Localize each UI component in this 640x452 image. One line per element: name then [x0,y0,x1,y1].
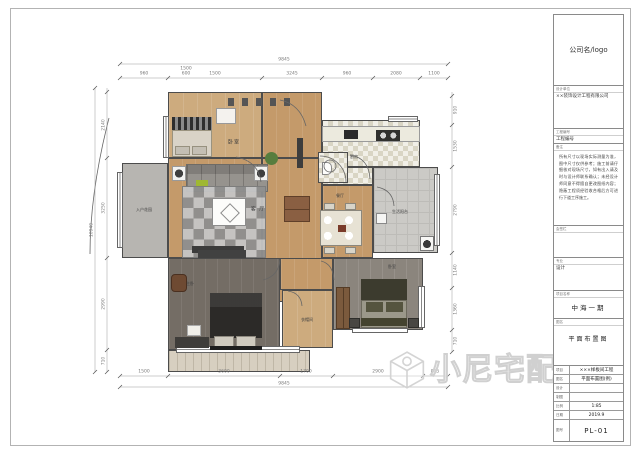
company-logo-text: 公司名/logo [569,45,607,55]
tb-design-unit-value: ××装饰设计工程有限公司 [554,93,623,101]
label-entry: 入户花园 [136,207,152,213]
tb-project-name-value: 中海一期 [554,298,623,312]
tb-drawing-name: 图名 平面布置图 [554,319,623,366]
dim-bottom-overall: 9845 [278,382,289,387]
tb-design-unit: 设计单位 ××装饰设计工程有限公司 [554,86,623,129]
tb-row-scale: 比例 1:85 [554,402,623,411]
tb-row-date: 日期 2019.9 [554,411,623,420]
dim-bottom-seg: 3600 [218,370,229,375]
dim-left-seg: 2990 [102,298,107,309]
tb-notes-text: 所有尺寸以现场实际测量为准，图中尺寸仅供参考；施工前请仔细核对现场尺寸，如有出入… [554,151,623,205]
dim-left-overall: 10940 [90,223,95,237]
dim-bottom-seg: 1700 [300,370,311,375]
title-block: 公司名/logo 设计单位 ××装饰设计工程有限公司 工程编号 工程编号 备注 … [553,14,624,442]
label-dining: 餐厅 [336,193,344,199]
tb-drawing-name-value: 平面布置图 [554,326,623,343]
tb-notes: 备注 所有尺寸以现场实际测量为准，图中尺寸仅供参考；施工前请仔细核对现场尺寸，如… [554,144,623,226]
tb-design-unit-label: 设计单位 [554,86,623,93]
dim-left-seg: 710 [102,357,107,366]
label-living: 客 厅 [251,206,266,213]
dim-top-seg: 960 [343,72,352,77]
label-master: 主卧 [186,281,194,287]
dim-top-seg: 1500 [209,72,220,77]
dim-top-overall: 9845 [278,58,289,63]
dim-bottom-seg: 1500 [138,370,149,375]
tb-project-name-label: 项目名称 [554,291,623,298]
dim-right-seg: 1140 [454,264,459,275]
tb-notes-label: 备注 [554,144,623,151]
label-kitchen: 厨房 [350,154,358,160]
tb-sheet-number: PL-01 [570,420,623,441]
tb-row-label: 日期 [554,411,570,419]
tb-row-label: 图号 [554,420,570,441]
watermark-cube-icon [384,346,430,394]
tb-row-value [570,393,623,401]
tb-discipline-value: 设计 [554,265,623,273]
dim-right-seg: 1360 [454,303,459,314]
tb-logo-box: 公司名/logo [554,15,623,86]
tb-row-designer: 设计 [554,384,623,393]
tb-row-drafter: 制图 [554,393,623,402]
tb-row-label: 比例 [554,402,570,410]
tb-project-no-value: 工程编号 [554,136,623,144]
tb-discipline: 专业 设计 [554,258,623,291]
watermark: 小尼宅配 [384,346,558,394]
tb-project-name: 项目名称 中海一期 [554,291,623,319]
label-laundry: 生活阳台 [392,209,408,215]
dim-bottom-seg: 2900 [372,370,383,375]
tb-project-no: 工程编号 工程编号 [554,129,623,144]
tb-row-label: 设计 [554,384,570,392]
dim-right-seg: 1530 [454,140,459,151]
dim-right-seg: 910 [454,106,459,115]
dim-left-seg: 3250 [102,202,107,213]
dim-top-seg: 1100 [428,72,439,77]
tb-row-label: 图名 [554,375,570,383]
tb-sign-label: 会签栏 [554,226,623,233]
drawing-sheet: 卧室 客 厅 入户花园 厨房 生活阳台 餐厅 主卧 衣帽间 卧室 9845 96… [0,0,640,452]
tb-row-value: ×××样板间工程 [570,366,623,374]
dim-top-seg: 960 [140,72,149,77]
dim-left-seg: 2140 [102,119,107,130]
tb-discipline-label: 专业 [554,258,623,265]
tb-row-label: 项目 [554,366,570,374]
tb-table: 项目 ×××样板间工程 图名 平面布置图(例) 设计 制图 比例 1:85 日期 [554,366,623,441]
tb-row-value [570,384,623,392]
label-cloakroom: 衣帽间 [301,317,313,323]
dim-top-seg: 2080 [390,72,401,77]
tb-row-value: 平面布置图(例) [570,375,623,383]
label-bedroom-br: 卧室 [388,264,396,270]
tb-row-project: 项目 ×××样板间工程 [554,366,623,375]
tb-row-value: 2019.9 [570,411,623,419]
dim-right-seg: 2790 [454,204,459,215]
tb-drawing-name-label: 图名 [554,319,623,326]
tb-sign-box: 会签栏 [554,226,623,258]
dim-top-seg: 3245 [286,72,297,77]
dim-right-seg: 710 [454,337,459,346]
tb-row-drawing: 图名 平面布置图(例) [554,375,623,384]
label-bedroom-tl: 卧室 [228,139,240,146]
tb-row-label: 制图 [554,393,570,401]
tb-project-no-label: 工程编号 [554,129,623,136]
watermark-text: 小尼宅配 [430,355,558,386]
tb-row-sheet-no: 图号 PL-01 [554,420,623,441]
dim-top-stack2: 600 [182,72,191,77]
tb-row-value: 1:85 [570,402,623,410]
